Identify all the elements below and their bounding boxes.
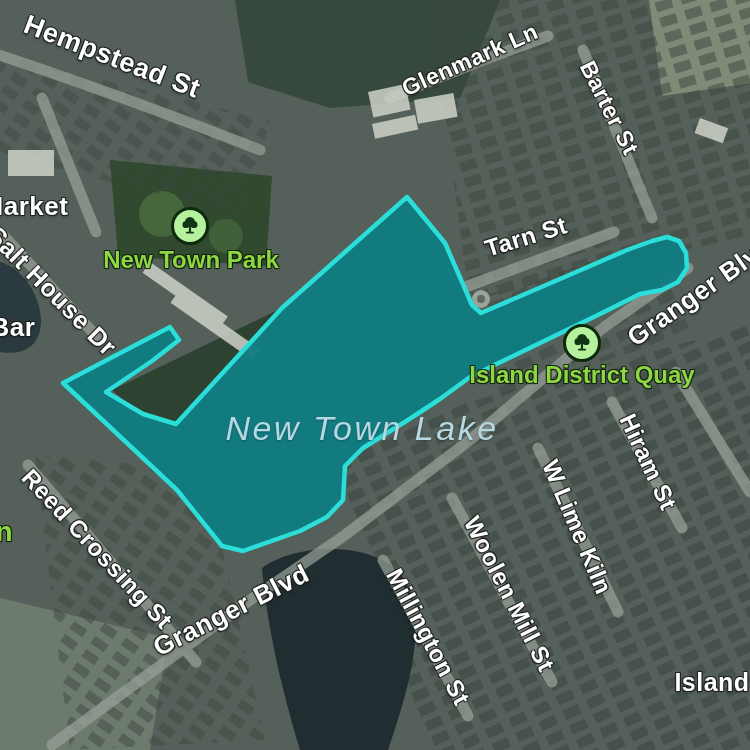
tree-icon[interactable] [171, 207, 209, 245]
tree-icon[interactable] [563, 324, 601, 362]
tree-glyph [569, 330, 595, 356]
tree-glyph [177, 213, 203, 239]
satellite-map-canvas[interactable]: Hempstead St Glenmark Ln Barter St Tarn … [0, 0, 750, 750]
lake-region-overlay[interactable] [63, 197, 687, 551]
lake-region-overlay-layer [0, 0, 750, 750]
